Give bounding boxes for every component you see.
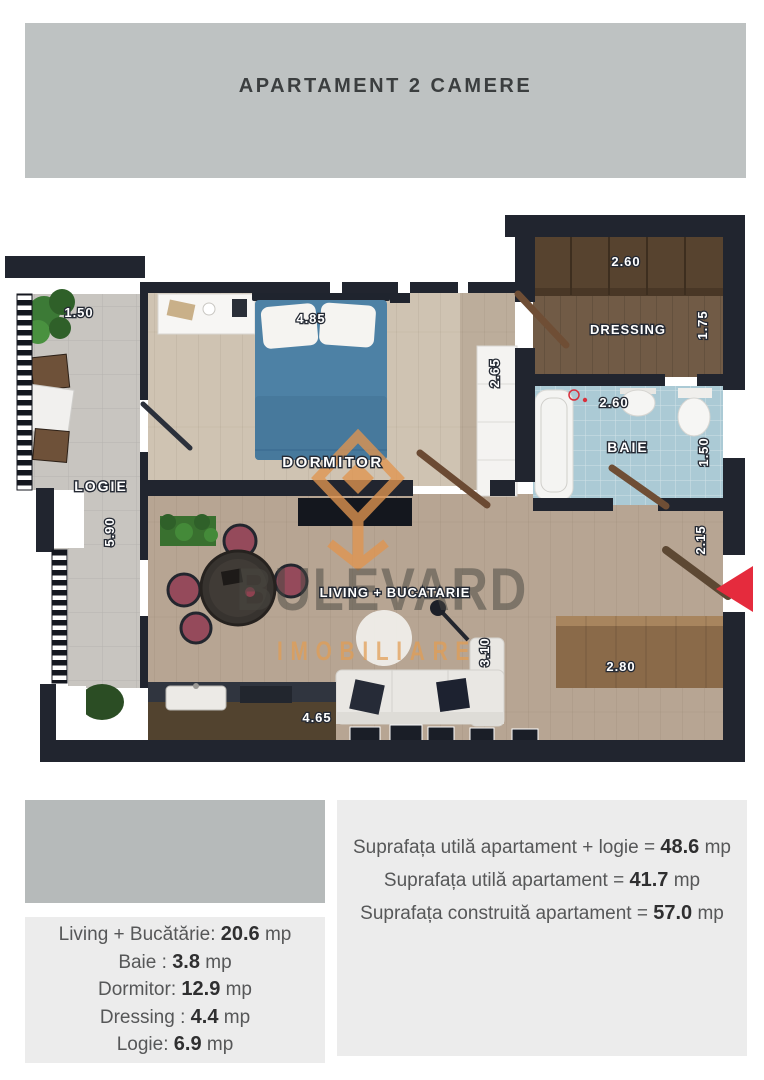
bed xyxy=(252,288,410,460)
dim-entry-depth: 2.15 xyxy=(693,525,708,554)
dim-logie-width: 1.50 xyxy=(64,305,93,320)
dim-logie-length: 5.90 xyxy=(102,517,117,546)
bush xyxy=(80,684,124,720)
dim-baie-depth: 1.50 xyxy=(696,437,711,466)
room-area-row: Living + Bucătărie: 20.6 mp xyxy=(25,921,325,949)
dim-living-depth: 3.10 xyxy=(477,637,492,666)
room-area-row: Dormitor: 12.9 mp xyxy=(25,976,325,1004)
dim-hall-depth: 2.65 xyxy=(487,358,502,387)
dim-counter-width: 2.80 xyxy=(606,659,635,674)
room-area-row: Logie: 6.9 mp xyxy=(25,1031,325,1059)
label-logie: LOGIE xyxy=(74,478,128,494)
kitchen-island xyxy=(556,616,738,688)
title-bar: APARTAMENT 2 CAMERE xyxy=(25,23,746,178)
brand-subtitle: IMOBILIARE xyxy=(277,636,477,666)
bathtub xyxy=(535,390,573,500)
planter xyxy=(160,514,218,546)
dim-living-width: 4.65 xyxy=(302,710,331,725)
room-area-row: Dressing : 4.4 mp xyxy=(25,1004,325,1032)
summary-row: Suprafața construită apartament = 57.0 m… xyxy=(337,897,747,930)
label-dormitor: DORMITOR xyxy=(282,454,383,471)
dim-dressing-depth: 1.75 xyxy=(695,310,710,339)
summary-box: Suprafața utilă apartament + logie = 48.… xyxy=(337,800,747,1056)
label-living: LIVING + BUCATARIE xyxy=(320,585,471,600)
door-marker-dot xyxy=(583,398,587,402)
label-baie: BAIE xyxy=(607,439,648,455)
gray-block xyxy=(25,800,325,903)
summary-row: Suprafața utilă apartament + logie = 48.… xyxy=(337,831,747,864)
room-area-row: Baie : 3.8 mp xyxy=(25,949,325,977)
toilet xyxy=(678,388,712,436)
summary-row: Suprafața utilă apartament = 41.7 mp xyxy=(337,864,747,897)
label-dressing: DRESSING xyxy=(590,322,666,337)
page-title: APARTAMENT 2 CAMERE xyxy=(239,75,532,98)
dim-dressing-width: 2.60 xyxy=(611,254,640,269)
room-areas-box: Living + Bucătărie: 20.6 mp Baie : 3.8 m… xyxy=(25,917,325,1063)
desk xyxy=(158,294,255,334)
floorplan-page: { "header": { "title": "APARTAMENT 2 CAM… xyxy=(0,0,764,1080)
dim-baie-width: 2.60 xyxy=(599,395,628,410)
dim-dormitor-width: 4.85 xyxy=(296,311,325,326)
